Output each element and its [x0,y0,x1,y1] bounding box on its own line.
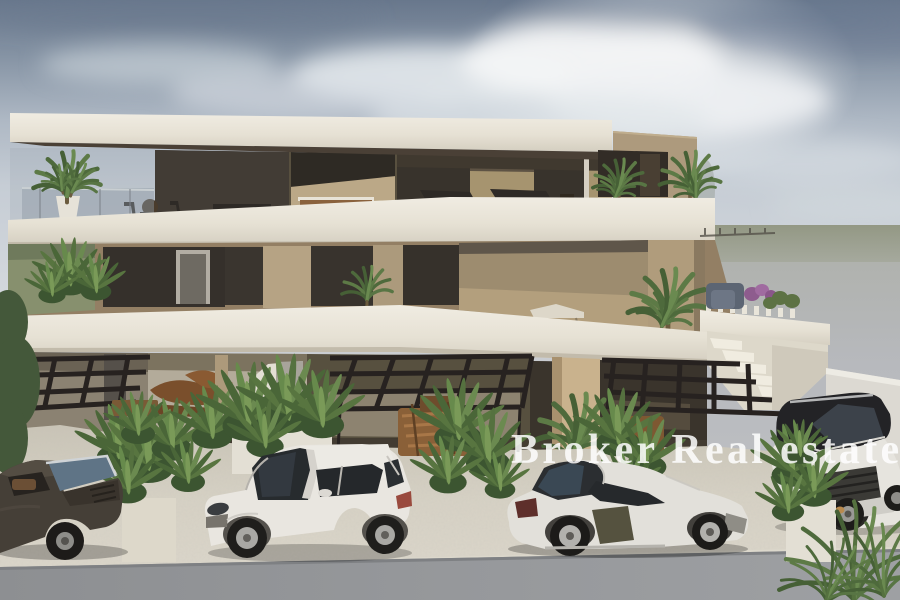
svg-text:Broker Real estate: Broker Real estate [511,427,900,473]
